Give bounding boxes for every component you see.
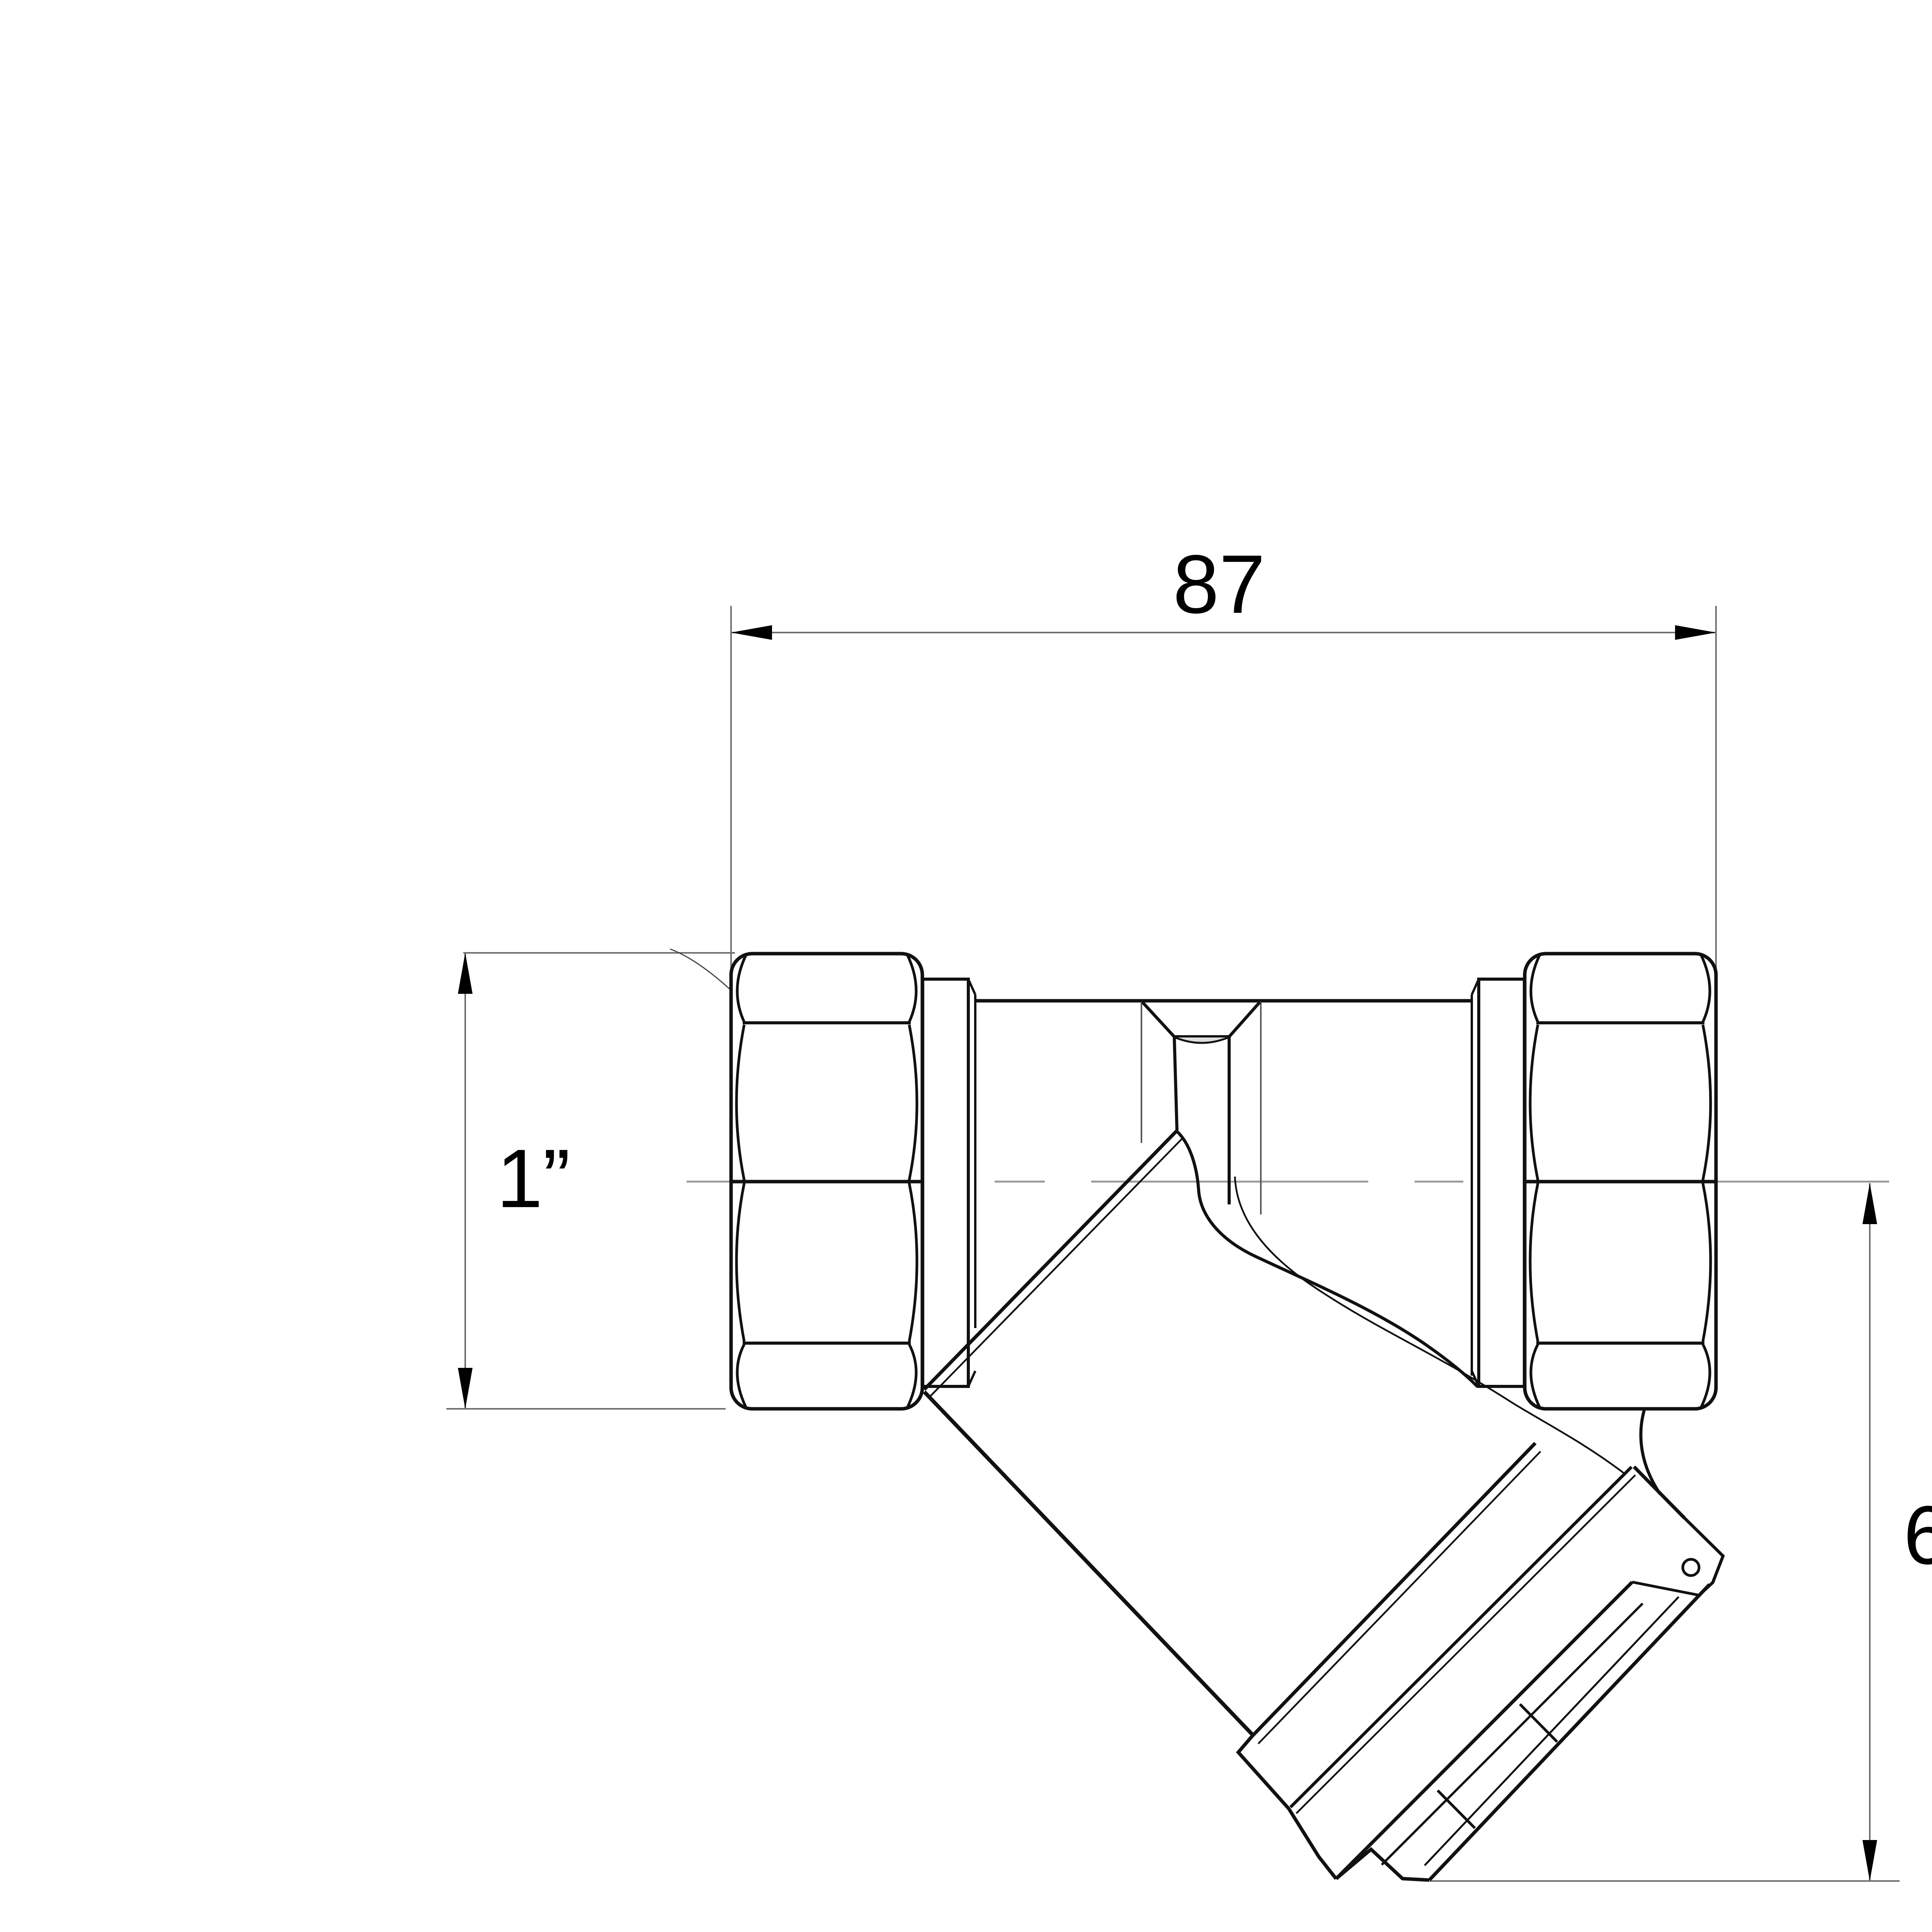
svg-text:60: 60 (1903, 1488, 1932, 1582)
svg-text:1”: 1” (497, 1132, 570, 1225)
svg-text:87: 87 (1173, 537, 1265, 631)
